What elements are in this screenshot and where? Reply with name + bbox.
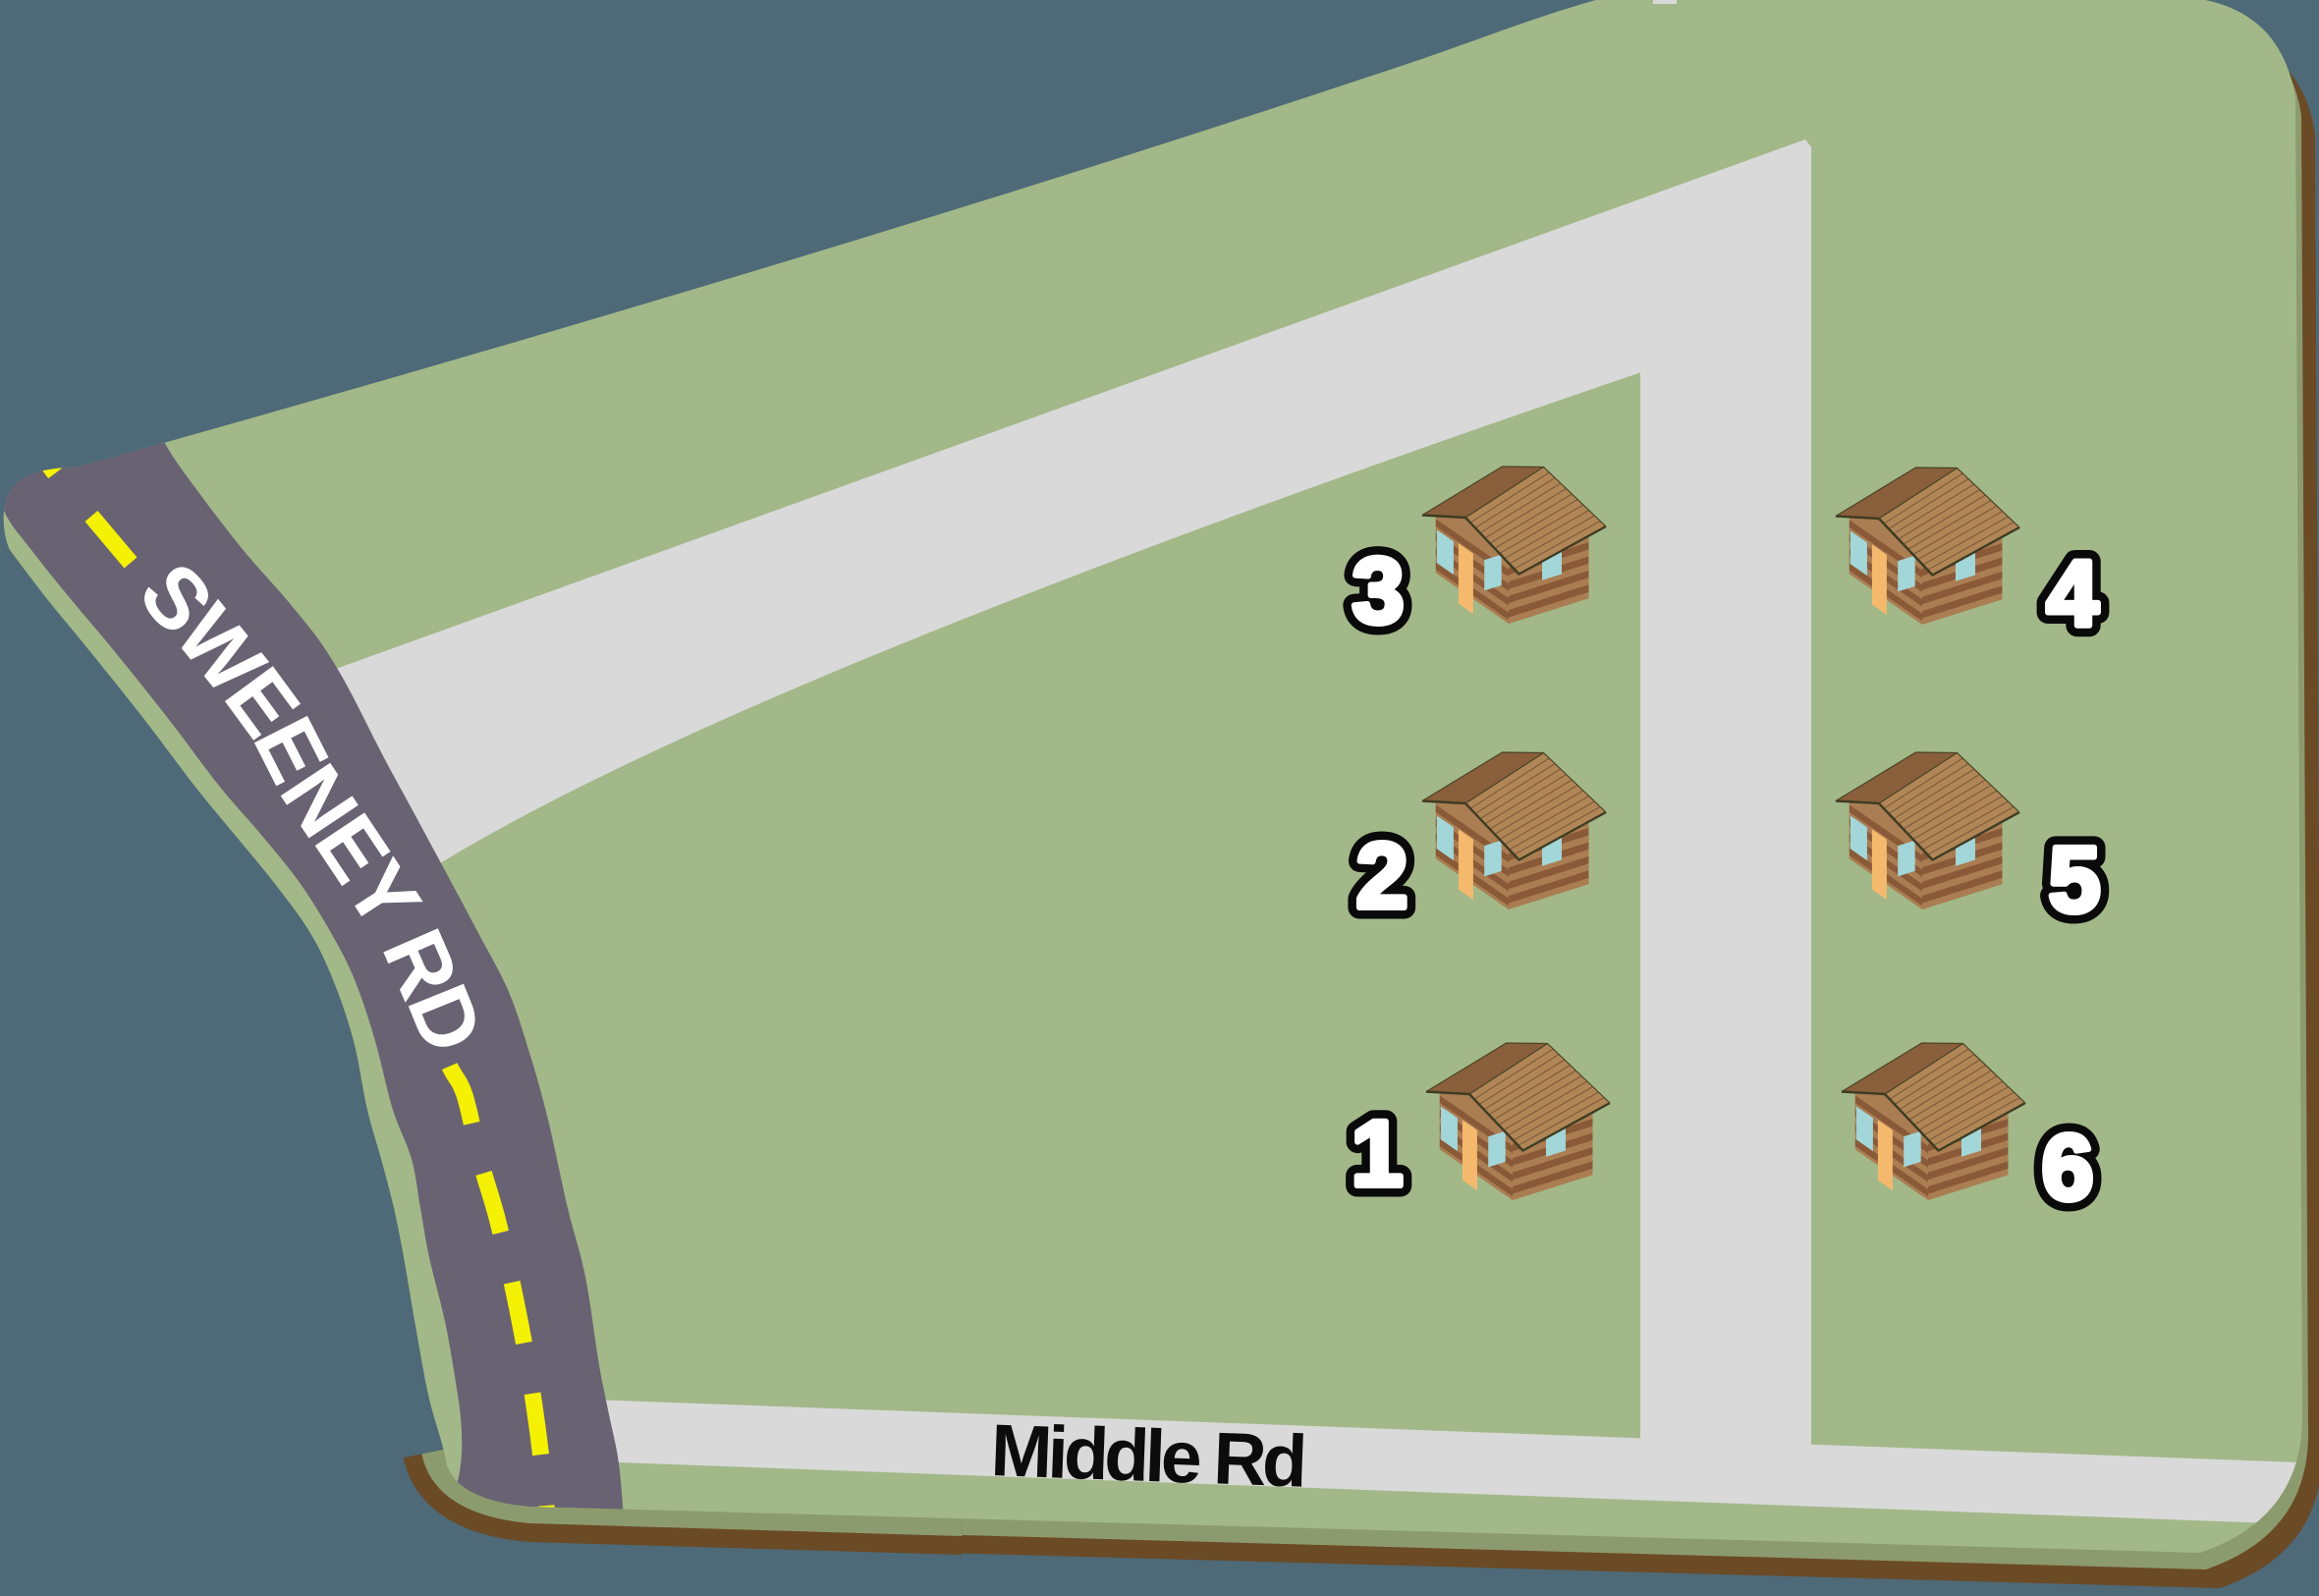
svg-text:2: 2 [1356,824,1408,928]
svg-text:3: 3 [1353,539,1405,643]
svg-text:6: 6 [2042,1116,2094,1220]
svg-text:1: 1 [1352,1102,1404,1206]
svg-text:5: 5 [2049,828,2101,932]
svg-text:4: 4 [2047,542,2099,646]
svg-text:Middle Rd: Middle Rd [989,1408,1304,1503]
